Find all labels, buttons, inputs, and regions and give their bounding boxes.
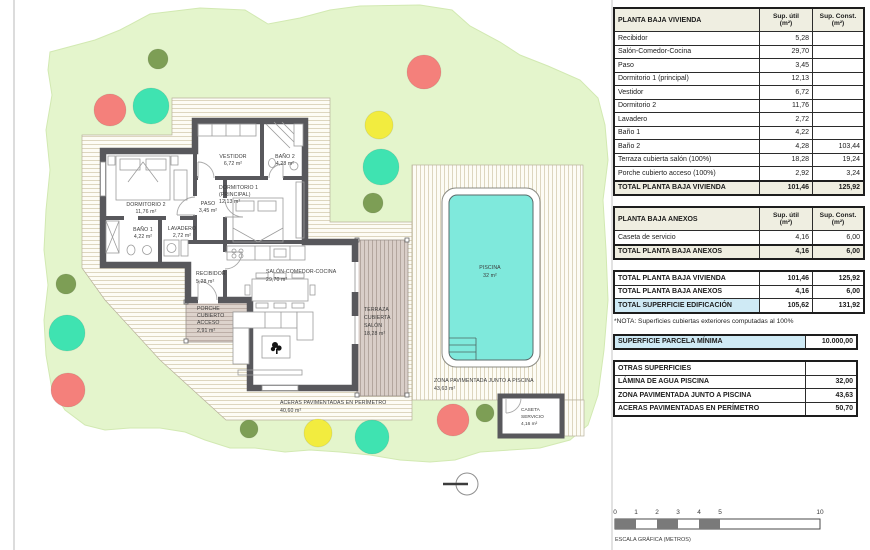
table-cell: 43,63 [806, 389, 858, 403]
table-cell: SUPERFICIE PARCELA MÍNIMA [614, 335, 806, 350]
room-label: RECIBIDOR [196, 271, 226, 277]
table-row: Dormitorio 211,76 [614, 99, 864, 113]
header-cell: Sup. Const. (m²) [813, 207, 865, 231]
table-cell: 6,72 [760, 86, 813, 100]
compass-icon [443, 473, 478, 495]
scale-tick: 10 [816, 509, 824, 516]
room-label: CUBIERTA [364, 315, 391, 321]
room-area: 4,22 m² [134, 234, 152, 240]
table-row: Baño 14,22 [614, 126, 864, 140]
room-label: SALÓN-COMEDOR-COCINA [266, 268, 337, 275]
area-value: 43,63 m² [434, 386, 455, 392]
table-cell: 18,28 [760, 153, 813, 167]
table-cell [813, 45, 865, 59]
area-label: ACERAS PAVIMENTADAS EN PERÍMETRO [280, 399, 386, 406]
header-cell: Sup. útil (m²) [760, 8, 813, 32]
table-cell: 3,24 [813, 167, 865, 181]
tree-icon [133, 88, 169, 124]
table-cell [813, 126, 865, 140]
table-cell: 12,13 [760, 72, 813, 86]
room-area: 11,76 m² [136, 209, 157, 215]
scale-caption: ESCALA GRÁFICA (METROS) [615, 536, 691, 543]
tree-icon [355, 420, 389, 454]
table-cell: 6,00 [813, 231, 865, 245]
room-label: SERVICIO [521, 414, 544, 420]
planta-baja-vivienda-table: PLANTA BAJA VIVIENDASup. útil (m²)Sup. C… [613, 7, 865, 196]
table-row: TOTAL PLANTA BAJA ANEXOS4,166,00 [614, 285, 864, 299]
tree-icon [407, 55, 441, 89]
tree-icon [240, 420, 258, 438]
table-cell: 6,00 [813, 285, 865, 299]
scale-tick: 5 [718, 509, 722, 516]
table-cell: 3,45 [760, 59, 813, 73]
surface-tables-panel: PLANTA BAJA VIVIENDASup. útil (m²)Sup. C… [613, 7, 853, 427]
table-cell [806, 361, 858, 375]
site-plan-sheet: VESTIDOR 6,72 m² BAÑO 2 4,28 m² DORMITOR… [0, 0, 870, 550]
table-cell: TOTAL PLANTA BAJA ANEXOS [614, 285, 760, 299]
table-cell [813, 86, 865, 100]
room-label: PASO [201, 201, 215, 207]
table-row: Baño 24,28103,44 [614, 140, 864, 154]
otras-superficies-table: OTRAS SUPERFICIESLÁMINA DE AGUA PISCINA3… [613, 360, 858, 417]
table-cell: Vestidor [614, 86, 760, 100]
table-cell: 4,28 [760, 140, 813, 154]
scale-tick: 1 [634, 509, 638, 516]
table-cell [813, 59, 865, 73]
table-cell: 6,00 [813, 245, 865, 260]
room-label: SALÓN [364, 322, 382, 329]
table-cell: 32,00 [806, 375, 858, 389]
table-cell: 50,70 [806, 402, 858, 416]
header-cell: Sup. Const. (m²) [813, 8, 865, 32]
tree-icon [51, 373, 85, 407]
table-cell: TOTAL PLANTA BAJA VIVIENDA [614, 181, 760, 196]
table-row: ACERAS PAVIMENTADAS EN PERÍMETRO50,70 [614, 402, 857, 416]
table-cell: OTRAS SUPERFICIES [614, 361, 806, 375]
room-label: DORMITORIO 2 [126, 202, 165, 208]
room-area: 18,28 m² [364, 331, 385, 337]
table-row: Terraza cubierta salón (100%)18,2819,24 [614, 153, 864, 167]
table-cell: 125,92 [813, 271, 865, 285]
table-cell: Lavadero [614, 113, 760, 127]
parcela-minima-table: SUPERFICIE PARCELA MÍNIMA10.000,00 [613, 334, 858, 351]
room-label: CASETA [521, 407, 541, 413]
tree-icon [363, 193, 383, 213]
room-area: 4,16 m² [521, 421, 538, 427]
planta-baja-anexos-table: PLANTA BAJA ANEXOSSup. útil (m²)Sup. Con… [613, 206, 865, 260]
room-label: LAVADERO [168, 226, 196, 232]
table-cell: Baño 1 [614, 126, 760, 140]
room-label: (PRINCIPAL) [219, 192, 251, 198]
tree-icon [56, 274, 76, 294]
header-cell: Sup. útil (m²) [760, 207, 813, 231]
room-label: PORCHE [197, 306, 220, 312]
header-cell: PLANTA BAJA ANEXOS [614, 207, 760, 231]
room-label: BAÑO 1 [133, 226, 153, 233]
pool-label: PISCINA [479, 265, 501, 271]
table-row: TOTAL PLANTA BAJA VIVIENDA101,46125,92 [614, 271, 864, 285]
room-area: 5,28 m² [196, 279, 214, 285]
table-row: Recibidor5,28 [614, 32, 864, 46]
room-area: 3,45 m² [199, 208, 217, 214]
table-cell: 2,72 [760, 113, 813, 127]
table-cell: Salón-Comedor-Cocina [614, 45, 760, 59]
table-cell: 4,16 [760, 245, 813, 260]
table-row: Lavadero2,72 [614, 113, 864, 127]
scale-tick: 2 [655, 509, 659, 516]
table-row: Caseta de servicio4,166,00 [614, 231, 864, 245]
table-row: LÁMINA DE AGUA PISCINA32,00 [614, 375, 857, 389]
room-label: CUBIERTO [197, 313, 224, 319]
tree-icon [49, 315, 85, 351]
table-row: Porche cubierto acceso (100%)2,923,24 [614, 167, 864, 181]
table-cell: 125,92 [813, 181, 865, 196]
scale-tick: 4 [697, 509, 701, 516]
table-row: TOTAL PLANTA BAJA VIVIENDA101,46125,92 [614, 181, 864, 196]
room-area: 2,72 m² [173, 233, 191, 239]
table-cell: 10.000,00 [806, 335, 858, 350]
table-cell: ACERAS PAVIMENTADAS EN PERÍMETRO [614, 402, 806, 416]
table-cell: Dormitorio 1 (principal) [614, 72, 760, 86]
table-row: SUPERFICIE PARCELA MÍNIMA10.000,00 [614, 335, 857, 350]
area-label: ZONA PAVIMENTADA JUNTO A PISCINA [434, 378, 534, 384]
table-row: Vestidor6,72 [614, 86, 864, 100]
table-row: Dormitorio 1 (principal)12,13 [614, 72, 864, 86]
tree-icon [365, 111, 393, 139]
room-area: 12,13 m² [219, 199, 240, 205]
tree-icon [148, 49, 168, 69]
table-row: ZONA PAVIMENTADA JUNTO A PISCINA43,63 [614, 389, 857, 403]
table-cell: 103,44 [813, 140, 865, 154]
table-cell: 101,46 [760, 181, 813, 196]
table-cell: 11,76 [760, 99, 813, 113]
table-cell: ZONA PAVIMENTADA JUNTO A PISCINA [614, 389, 806, 403]
table-row: TOTAL SUPERFICIE EDIFICACIÓN105,62131,92 [614, 299, 864, 313]
table-row: Salón-Comedor-Cocina29,70 [614, 45, 864, 59]
table-cell: 4,22 [760, 126, 813, 140]
table-cell [813, 113, 865, 127]
scale-ticks: 0 1 2 3 4 5 10 [613, 509, 824, 516]
table-cell: 4,16 [760, 285, 813, 299]
table-cell: 4,16 [760, 231, 813, 245]
room-area: 2,91 m² [197, 328, 215, 334]
room-area: 4,28 m² [276, 161, 294, 167]
table-cell: Baño 2 [614, 140, 760, 154]
table-cell: 19,24 [813, 153, 865, 167]
area-value: 40,60 m² [280, 408, 301, 414]
table-cell: TOTAL PLANTA BAJA VIVIENDA [614, 271, 760, 285]
table-cell [813, 32, 865, 46]
room-area: 6,72 m² [224, 161, 242, 167]
table-cell: TOTAL PLANTA BAJA ANEXOS [614, 245, 760, 260]
table-note: *NOTA: Superficies cubiertas exteriores … [614, 318, 853, 325]
room-label: DORMITORIO 1 [219, 185, 258, 191]
scale-tick: 0 [613, 509, 617, 516]
room-label: VESTIDOR [219, 154, 246, 160]
totales-table: TOTAL PLANTA BAJA VIVIENDA101,46125,92TO… [613, 270, 865, 314]
scale-bar: 0 1 2 3 4 5 10 ESCALA GRÁFICA (METROS) [613, 509, 824, 543]
tree-icon [363, 149, 399, 185]
table-cell [813, 72, 865, 86]
header-cell: PLANTA BAJA VIVIENDA [614, 8, 760, 32]
table-header-row: PLANTA BAJA ANEXOSSup. útil (m²)Sup. Con… [614, 207, 864, 231]
table-cell: LÁMINA DE AGUA PISCINA [614, 375, 806, 389]
table-cell: 105,62 [760, 299, 813, 313]
table-row: Paso3,45 [614, 59, 864, 73]
table-row: TOTAL PLANTA BAJA ANEXOS4,166,00 [614, 245, 864, 260]
table-cell: Recibidor [614, 32, 760, 46]
table-cell: 131,92 [813, 299, 865, 313]
table-header-row: PLANTA BAJA VIVIENDASup. útil (m²)Sup. C… [614, 8, 864, 32]
table-cell: 101,46 [760, 271, 813, 285]
table-cell: Caseta de servicio [614, 231, 760, 245]
table-cell [813, 99, 865, 113]
table-cell: Terraza cubierta salón (100%) [614, 153, 760, 167]
table-cell: 2,92 [760, 167, 813, 181]
tree-icon [304, 419, 332, 447]
room-label: ACCESO [197, 320, 220, 326]
room-label: TERRAZA [364, 307, 389, 313]
table-cell: Dormitorio 2 [614, 99, 760, 113]
pool-area: 32 m² [483, 273, 497, 279]
tree-icon [94, 94, 126, 126]
room-area: 29,70 m² [266, 277, 287, 283]
scale-tick: 3 [676, 509, 680, 516]
table-cell: Paso [614, 59, 760, 73]
table-cell: TOTAL SUPERFICIE EDIFICACIÓN [614, 299, 760, 313]
tree-icon [476, 404, 494, 422]
room-label: BAÑO 2 [275, 153, 295, 160]
tree-icon [437, 404, 469, 436]
table-cell: 5,28 [760, 32, 813, 46]
table-row: OTRAS SUPERFICIES [614, 361, 857, 375]
table-cell: 29,70 [760, 45, 813, 59]
table-cell: Porche cubierto acceso (100%) [614, 167, 760, 181]
